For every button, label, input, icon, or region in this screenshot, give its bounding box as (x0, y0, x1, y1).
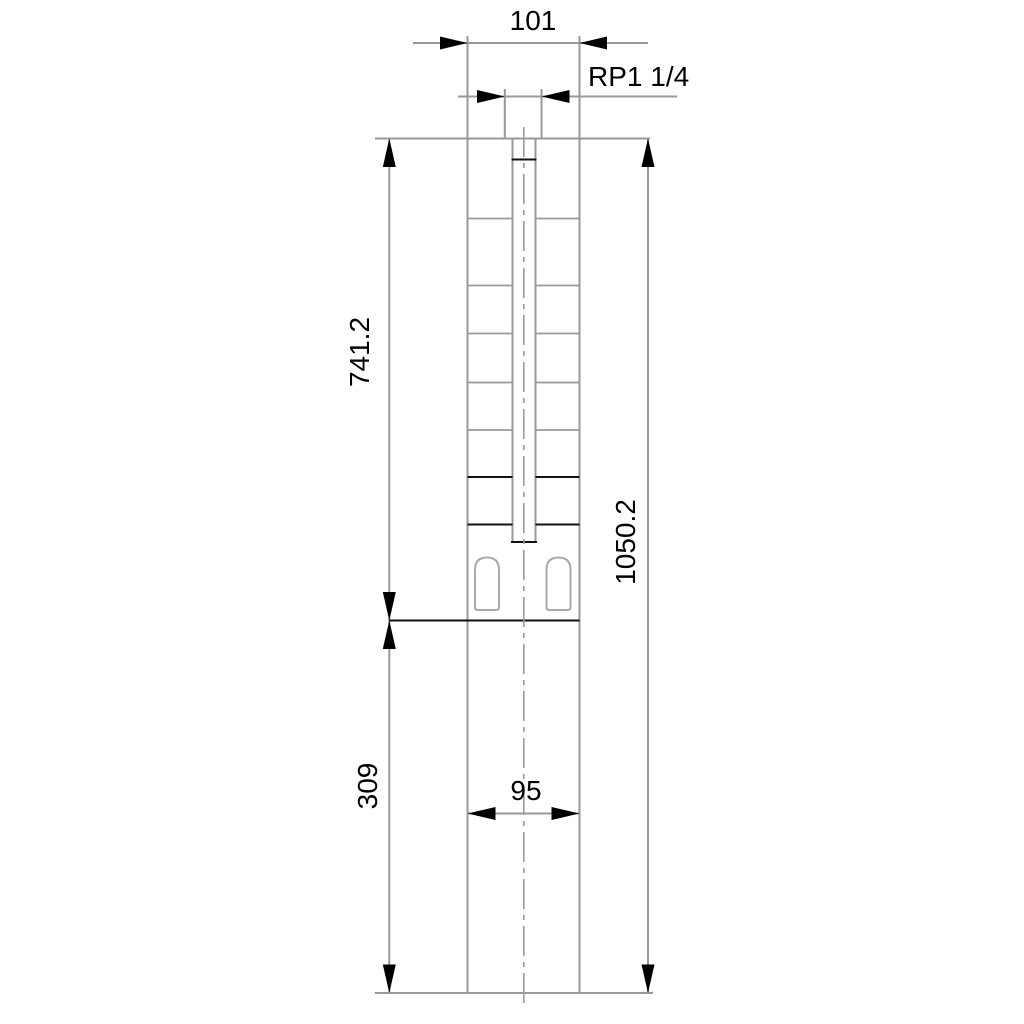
dim-label-width-top: 101 (510, 7, 557, 35)
arrow-95-left (468, 807, 496, 820)
cable-guard-window-right (547, 558, 571, 611)
detail-lines-black (389, 160, 579, 621)
arrow-741-top (383, 139, 396, 168)
dim-label-thread: RP1 1/4 (588, 63, 689, 91)
dim-label-total-length: 1050.2 (612, 499, 640, 585)
arrow-309-top (383, 621, 396, 650)
arrow-101-left (440, 37, 468, 50)
arrow-95-right (552, 807, 580, 820)
arrow-741-bottom (383, 592, 396, 621)
dim-label-pump-length: 741.2 (346, 317, 374, 387)
drawing-canvas: 101 RP1 1/4 741.2 1050.2 309 95 (0, 0, 1024, 1024)
arrow-1050-top (642, 139, 655, 168)
arrow-309-bottom (383, 965, 396, 994)
arrow-101-right (580, 37, 608, 50)
cable-guard-windows (475, 558, 571, 611)
pump-dimension-drawing (0, 0, 1024, 1024)
arrow-1050-bottom (642, 965, 655, 994)
cable-guard-window-left (475, 558, 499, 611)
dim-label-width-bottom: 95 (510, 777, 541, 805)
dim-label-motor-length: 309 (354, 763, 382, 810)
arrow-rp-right (542, 90, 570, 103)
arrow-rp-left (477, 90, 505, 103)
